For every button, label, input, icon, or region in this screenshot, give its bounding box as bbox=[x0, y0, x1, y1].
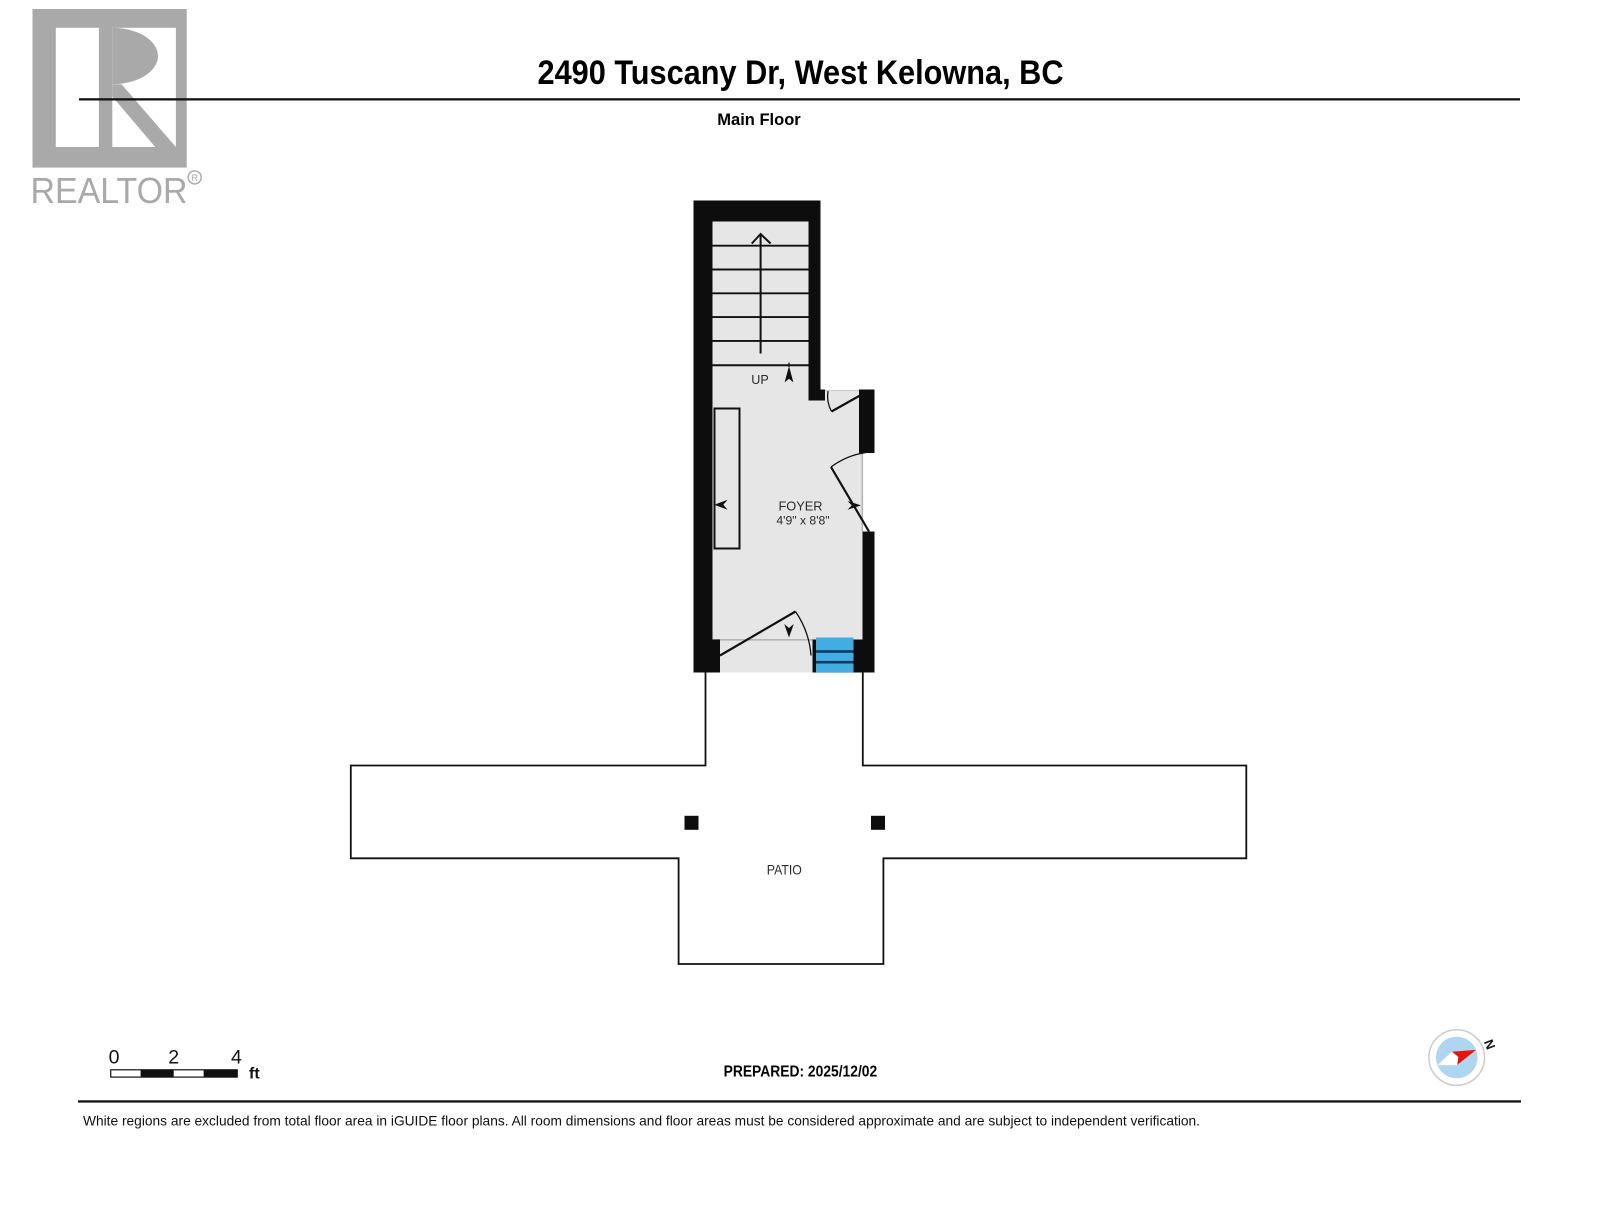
svg-text:FOYER: FOYER bbox=[778, 499, 822, 514]
svg-text:4'9" x 8'8": 4'9" x 8'8" bbox=[776, 513, 829, 527]
svg-text:White regions are excluded fro: White regions are excluded from total fl… bbox=[83, 1114, 1200, 1129]
svg-text:PREPARED: 2025/12/02: PREPARED: 2025/12/02 bbox=[724, 1063, 878, 1080]
svg-text:2490 Tuscany Dr, West Kelowna,: 2490 Tuscany Dr, West Kelowna, BC bbox=[538, 54, 1064, 92]
svg-text:0: 0 bbox=[109, 1047, 120, 1069]
svg-text:2: 2 bbox=[168, 1047, 179, 1069]
svg-text:R: R bbox=[191, 173, 198, 183]
svg-text:N: N bbox=[1481, 1037, 1498, 1051]
svg-text:UP: UP bbox=[751, 373, 769, 387]
svg-text:ft: ft bbox=[249, 1066, 260, 1083]
svg-text:4: 4 bbox=[231, 1047, 242, 1069]
svg-text:REALTOR: REALTOR bbox=[31, 170, 188, 211]
svg-text:Main Floor: Main Floor bbox=[717, 111, 801, 129]
svg-text:PATIO: PATIO bbox=[767, 863, 802, 878]
